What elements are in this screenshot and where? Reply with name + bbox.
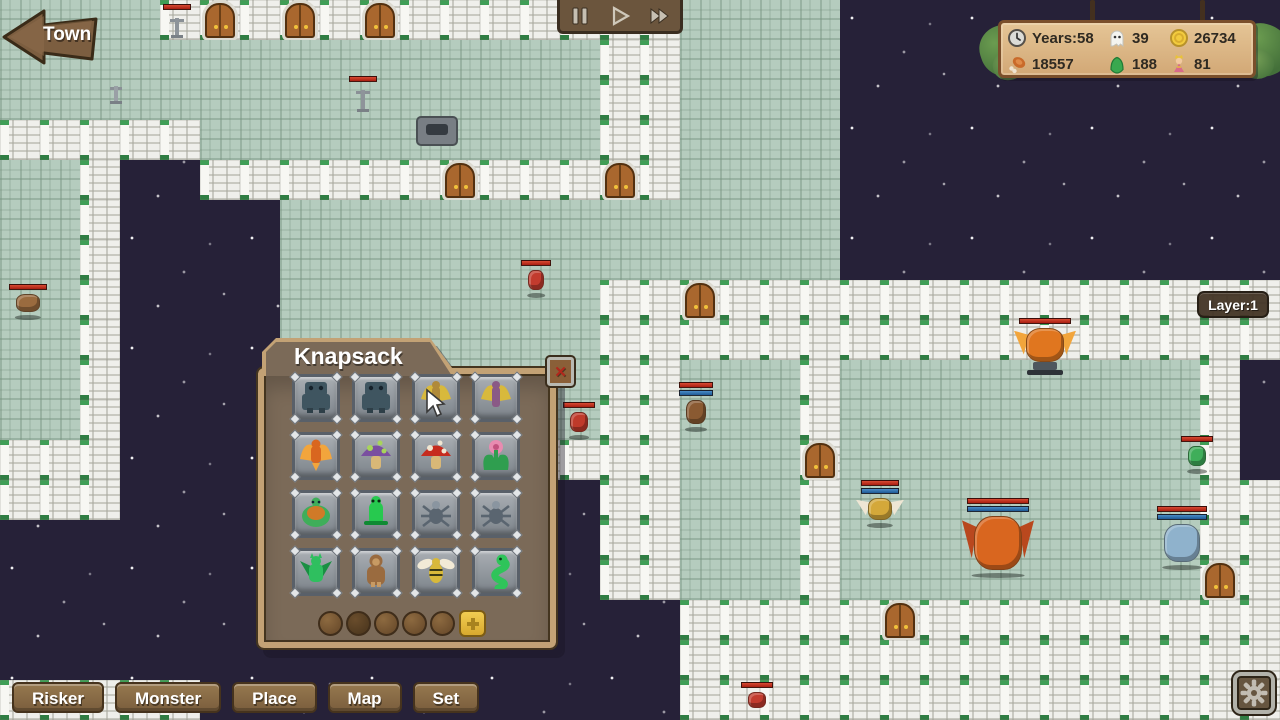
candelabrum bbox=[110, 82, 122, 104]
fast-forward-icon bbox=[648, 5, 672, 27]
hp-bar-red bbox=[967, 498, 1029, 504]
game-viewport: Town Years:5839267341855718881 Layer:1 K… bbox=[0, 0, 1280, 720]
bat-body bbox=[686, 400, 706, 424]
purple-mushroom-icon bbox=[356, 435, 396, 478]
knapsack-slot-spider[interactable] bbox=[412, 490, 460, 538]
candelabrum-stem bbox=[361, 90, 365, 110]
town-button[interactable]: Town bbox=[0, 4, 102, 66]
hp-bar-blue bbox=[861, 488, 899, 494]
stone-golem-icon bbox=[356, 377, 396, 420]
harpy-icon bbox=[476, 377, 516, 420]
slime-body bbox=[1188, 446, 1206, 466]
town-button-label: Town bbox=[43, 24, 91, 46]
coin-icon bbox=[1169, 28, 1189, 48]
hp-bar-red bbox=[349, 76, 377, 82]
page-dot-4[interactable] bbox=[402, 611, 427, 636]
stats-grid: Years:5839267341855718881 bbox=[1001, 23, 1253, 77]
snake-icon bbox=[476, 551, 516, 594]
knapsack-slot-carnivorous-plant[interactable] bbox=[472, 432, 520, 480]
knapsack-slot-stone-golem[interactable] bbox=[352, 374, 400, 422]
hp-bar-red bbox=[521, 260, 551, 266]
imp-body bbox=[528, 270, 544, 290]
pause-button[interactable] bbox=[567, 4, 593, 28]
bee-icon bbox=[416, 551, 456, 594]
imp[interactable] bbox=[528, 270, 544, 290]
tab-map[interactable]: Map bbox=[328, 682, 402, 713]
knapsack-slot-snake[interactable] bbox=[472, 548, 520, 596]
tab-monster[interactable]: Monster bbox=[115, 682, 221, 713]
tab-risker[interactable]: Risker bbox=[12, 682, 104, 713]
spider-icon bbox=[476, 493, 516, 536]
altar-slab bbox=[416, 116, 458, 146]
princess-icon bbox=[1169, 54, 1189, 74]
knapsack-slot-turtle[interactable] bbox=[292, 490, 340, 538]
entity-layer bbox=[0, 0, 1280, 720]
ice-golem-body bbox=[1164, 524, 1200, 562]
page-dot-5[interactable] bbox=[430, 611, 455, 636]
imp-body bbox=[748, 692, 766, 708]
slime-icon bbox=[1107, 54, 1127, 74]
stats-sign: Years:5839267341855718881 bbox=[988, 0, 1280, 95]
gargoyle-icon bbox=[296, 551, 336, 594]
candelabrum-base bbox=[357, 109, 369, 112]
fast-forward-button[interactable] bbox=[647, 4, 673, 28]
close-icon: ✕ bbox=[554, 363, 567, 381]
play-icon bbox=[608, 5, 632, 27]
knapsack-slot-phoenix[interactable] bbox=[292, 432, 340, 480]
candelabrum bbox=[356, 86, 370, 112]
phoenix-body bbox=[1026, 328, 1064, 362]
stat-clock: Years:58 bbox=[1007, 25, 1107, 51]
knapsack-slot-spider[interactable] bbox=[472, 490, 520, 538]
shadow bbox=[685, 427, 707, 432]
stat-princess: 81 bbox=[1169, 51, 1257, 77]
hp-bar-red bbox=[1157, 506, 1207, 512]
knapsack-slot-lizard[interactable] bbox=[352, 490, 400, 538]
pause-icon bbox=[568, 5, 592, 27]
hp-bar-red bbox=[741, 682, 773, 688]
knapsack-slot-purple-mushroom[interactable] bbox=[352, 432, 400, 480]
add-page-button[interactable] bbox=[459, 610, 486, 637]
spider-icon bbox=[416, 493, 456, 536]
knapsack-slot-red-mushroom[interactable] bbox=[412, 432, 460, 480]
carnivorous-plant-icon bbox=[476, 435, 516, 478]
deer[interactable] bbox=[16, 294, 40, 312]
knapsack-panel: Knapsack bbox=[258, 338, 556, 648]
settings-button[interactable] bbox=[1233, 672, 1275, 714]
shadow bbox=[867, 523, 893, 528]
dragon-body bbox=[974, 516, 1022, 570]
stat-ghost: 39 bbox=[1107, 25, 1169, 51]
hp-bar-red bbox=[1019, 318, 1071, 324]
hp-bar-blue bbox=[967, 506, 1029, 512]
plus-icon bbox=[465, 616, 481, 632]
knapsack-slot-ape[interactable] bbox=[352, 548, 400, 596]
shadow bbox=[15, 315, 41, 320]
phoenix[interactable] bbox=[1026, 328, 1064, 362]
stat-coin: 26734 bbox=[1169, 25, 1257, 51]
knapsack-title: Knapsack bbox=[294, 343, 403, 370]
play-button[interactable] bbox=[607, 4, 633, 28]
altar-opening bbox=[426, 124, 449, 135]
ice-golem[interactable] bbox=[1164, 524, 1200, 562]
red-mushroom-icon bbox=[416, 435, 456, 478]
stats-board: Years:5839267341855718881 bbox=[998, 20, 1256, 78]
close-button[interactable]: ✕ bbox=[547, 357, 574, 386]
altar bbox=[416, 116, 458, 146]
stat-value: 39 bbox=[1132, 30, 1149, 47]
tab-set[interactable]: Set bbox=[413, 682, 479, 713]
lizard-icon bbox=[356, 493, 396, 536]
stat-meat: 18557 bbox=[1007, 51, 1107, 77]
hp-bar-red bbox=[679, 382, 713, 388]
shadow bbox=[1187, 469, 1207, 474]
knapsack-slot-gargoyle[interactable] bbox=[292, 548, 340, 596]
stat-value: 26734 bbox=[1194, 30, 1236, 47]
candelabrum bbox=[170, 14, 184, 38]
knapsack-slot-bee[interactable] bbox=[412, 548, 460, 596]
stat-value: 81 bbox=[1194, 56, 1211, 73]
wasp-body bbox=[868, 498, 892, 520]
stat-value: 18557 bbox=[1032, 56, 1074, 73]
slime[interactable] bbox=[1188, 446, 1206, 466]
hp-bar-red bbox=[9, 284, 47, 290]
red-bird[interactable] bbox=[570, 412, 588, 432]
stone-golem-icon bbox=[296, 377, 336, 420]
bottom-tab-bar: RiskerMonsterPlaceMapSet bbox=[12, 682, 479, 713]
candelabrum-base bbox=[110, 101, 122, 104]
wasp[interactable] bbox=[868, 498, 892, 520]
pedestal-base bbox=[1027, 370, 1063, 375]
stat-value: 188 bbox=[1132, 56, 1157, 73]
candelabrum-base bbox=[171, 35, 183, 38]
hp-bar-blue bbox=[679, 390, 713, 396]
imp[interactable] bbox=[748, 692, 766, 708]
gear-icon bbox=[1239, 678, 1269, 708]
knapsack-slot-harpy[interactable] bbox=[472, 374, 520, 422]
ghost-icon bbox=[1107, 28, 1127, 48]
knapsack-slot-stone-golem[interactable] bbox=[292, 374, 340, 422]
winged-idol-icon bbox=[416, 377, 456, 420]
ape-icon bbox=[356, 551, 396, 594]
stat-slime: 188 bbox=[1107, 51, 1169, 77]
stat-value: Years:58 bbox=[1032, 30, 1094, 47]
page-dot-3[interactable] bbox=[374, 611, 399, 636]
clock-icon bbox=[1007, 28, 1027, 48]
knapsack-tab: Knapsack bbox=[262, 338, 458, 376]
knapsack-slot-winged-idol[interactable] bbox=[412, 374, 460, 422]
layer-badge[interactable]: Layer:1 bbox=[1197, 291, 1269, 318]
hp-bar-red bbox=[163, 4, 191, 10]
shadow bbox=[972, 573, 1025, 578]
deer-body bbox=[16, 294, 40, 312]
hp-bar-red bbox=[861, 480, 899, 486]
tab-place[interactable]: Place bbox=[232, 682, 316, 713]
candelabrum-stem bbox=[114, 86, 118, 102]
dragon[interactable] bbox=[974, 516, 1022, 570]
shadow bbox=[527, 293, 545, 298]
pedestal bbox=[1033, 362, 1057, 370]
turtle-icon bbox=[296, 493, 336, 536]
shadow bbox=[1162, 565, 1202, 570]
bat[interactable] bbox=[686, 400, 706, 424]
hp-bar-red bbox=[1181, 436, 1213, 442]
page-dot-2[interactable] bbox=[346, 611, 371, 636]
hp-bar-red bbox=[563, 402, 595, 408]
time-controls bbox=[557, 0, 683, 34]
red-bird-body bbox=[570, 412, 588, 432]
hp-bar-blue bbox=[1157, 514, 1207, 520]
meat-icon bbox=[1007, 54, 1027, 74]
shadow bbox=[569, 435, 589, 440]
page-dot-1[interactable] bbox=[318, 611, 343, 636]
phoenix-icon bbox=[296, 435, 336, 478]
candelabrum-stem bbox=[175, 18, 179, 36]
